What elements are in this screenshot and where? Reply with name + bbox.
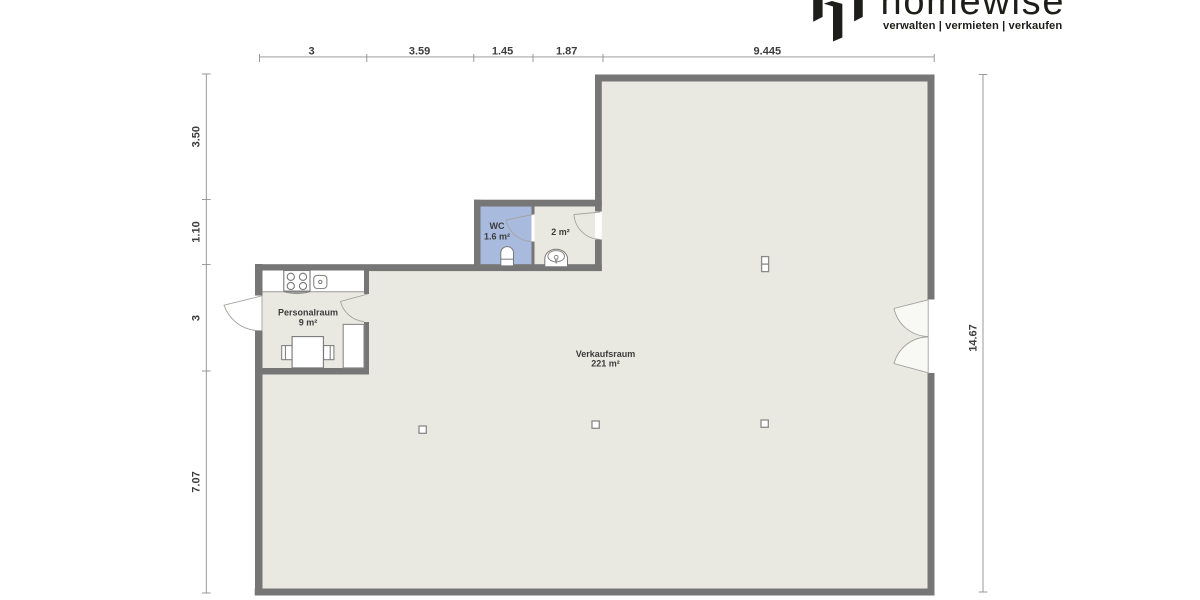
svg-text:14.67: 14.67 [968,324,980,352]
svg-text:3: 3 [308,46,314,58]
svg-text:3: 3 [191,315,203,321]
svg-text:1.6 m²: 1.6 m² [484,232,510,242]
svg-text:7.07: 7.07 [191,471,203,492]
svg-text:Personalraum: Personalraum [278,308,338,318]
svg-text:3.50: 3.50 [191,126,203,147]
svg-text:3.59: 3.59 [409,46,430,58]
svg-text:1.10: 1.10 [191,221,203,242]
svg-text:1.87: 1.87 [556,46,577,58]
svg-text:221 m²: 221 m² [591,359,620,369]
svg-text:9 m²: 9 m² [299,318,318,328]
svg-text:9.445: 9.445 [754,46,782,58]
svg-text:WC: WC [490,221,505,231]
svg-text:verwalten | vermieten | verkau: verwalten | vermieten | verkaufen [883,20,1062,32]
svg-text:1.45: 1.45 [492,46,513,58]
svg-text:Verkaufsraum: Verkaufsraum [576,349,636,359]
svg-text:2 m²: 2 m² [551,227,570,237]
